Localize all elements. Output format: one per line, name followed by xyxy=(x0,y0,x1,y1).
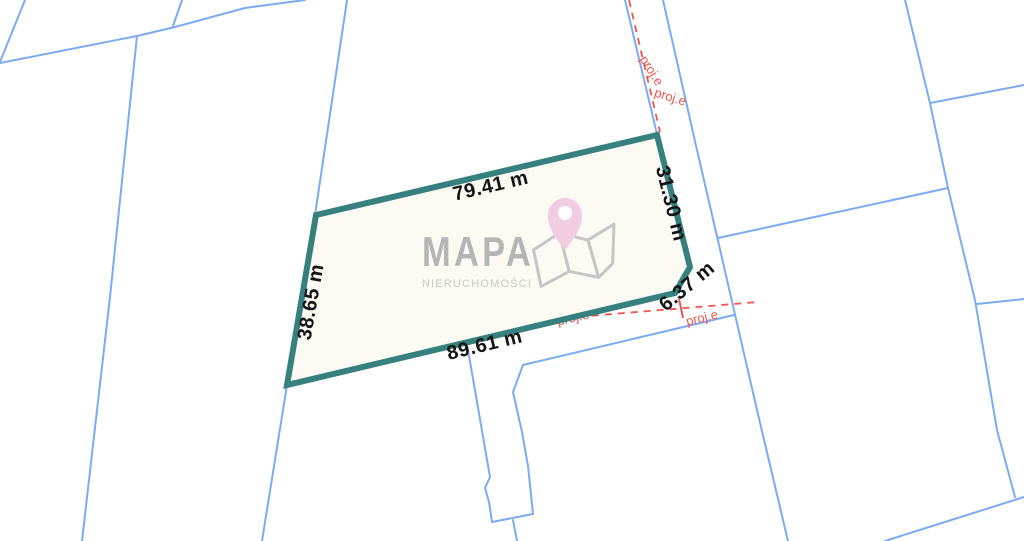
watermark-title: MAPA xyxy=(422,229,534,276)
watermark-subtitle: NIERUCHOMOŚCI xyxy=(422,277,532,290)
cadastral-map: proj.e proj.e proj.e MAPA NIERUCHOMOŚCI … xyxy=(0,0,1024,541)
